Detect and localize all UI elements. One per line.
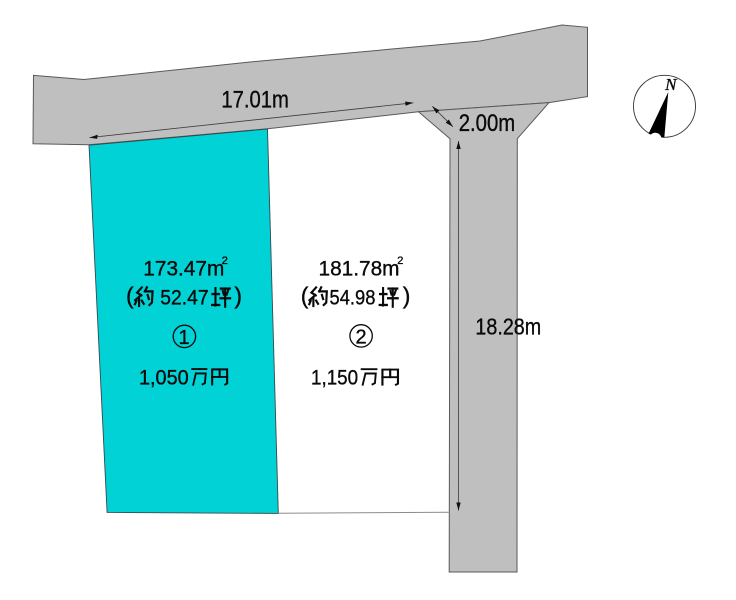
svg-text:): ): [234, 283, 242, 309]
svg-text:52.47: 52.47: [160, 287, 208, 310]
svg-text:17.01m: 17.01m: [221, 86, 289, 113]
svg-text:1,050: 1,050: [139, 366, 189, 389]
svg-text:1,150: 1,150: [311, 366, 358, 389]
svg-text:2: 2: [397, 255, 403, 267]
svg-text:54.98: 54.98: [330, 287, 376, 310]
svg-text:): ): [403, 283, 411, 309]
svg-text:2.00m: 2.00m: [459, 110, 516, 137]
svg-text:2: 2: [222, 255, 228, 267]
svg-text:2: 2: [356, 327, 367, 349]
svg-text:N: N: [664, 75, 678, 94]
svg-text:18.28m: 18.28m: [475, 314, 541, 340]
svg-text:181.78m: 181.78m: [319, 257, 400, 280]
svg-text:(: (: [126, 283, 134, 309]
svg-text:1: 1: [178, 327, 189, 349]
svg-text:173.47m: 173.47m: [143, 257, 224, 280]
svg-text:(: (: [301, 283, 309, 309]
